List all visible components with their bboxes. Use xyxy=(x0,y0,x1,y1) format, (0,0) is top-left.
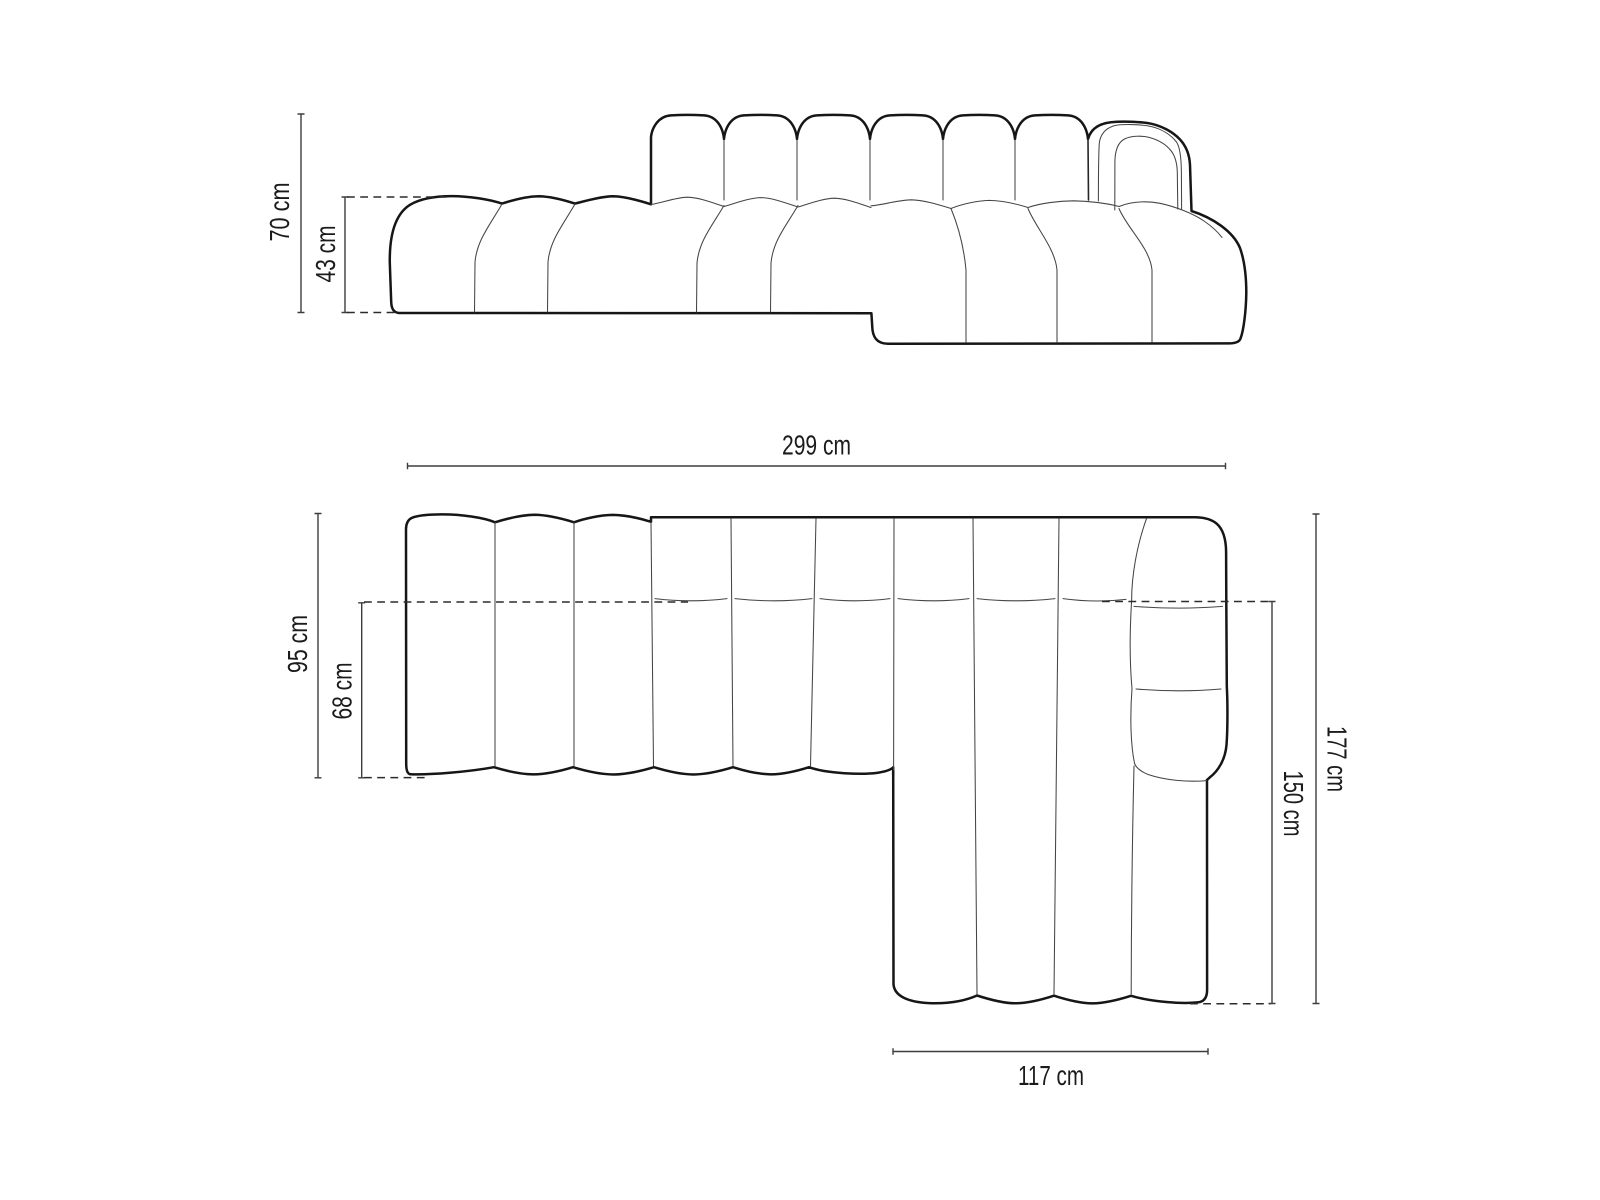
svg-text:117 cm: 117 cm xyxy=(1018,1060,1084,1091)
svg-text:150 cm: 150 cm xyxy=(1278,771,1309,837)
svg-text:299 cm: 299 cm xyxy=(782,430,851,461)
svg-text:68 cm: 68 cm xyxy=(327,663,358,720)
svg-text:177 cm: 177 cm xyxy=(1322,726,1353,792)
svg-text:43 cm: 43 cm xyxy=(310,226,341,283)
svg-text:70 cm: 70 cm xyxy=(264,183,295,242)
svg-text:95 cm: 95 cm xyxy=(282,615,313,673)
